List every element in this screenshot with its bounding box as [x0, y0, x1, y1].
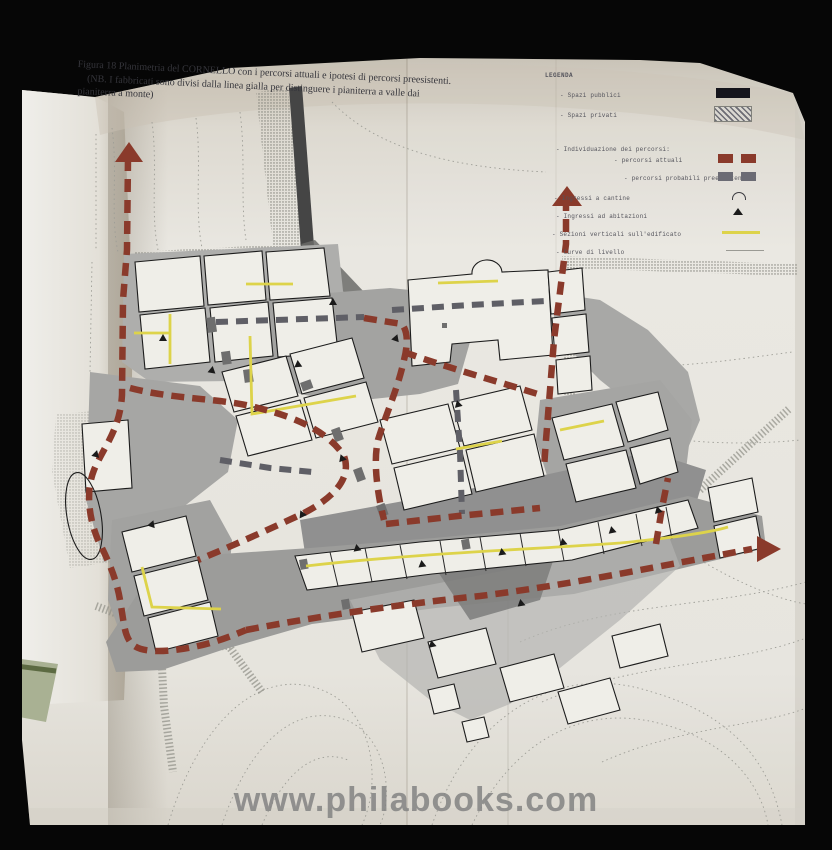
photo-frame: Figura 18 Planimetria del CORNELLO con i… [0, 0, 832, 850]
legend-swatch-spazi-pubblici-icon [716, 88, 750, 98]
legend-item-ingressi-cantine: - Ingressi a cantine [554, 195, 630, 202]
legend-item-ingressi-abitazioni: - Ingressi ad abitazioni [556, 213, 647, 220]
legend-item-spazi-pubblici: - Spazi pubblici [560, 92, 621, 99]
legend-item-curve-livello: - Curve di livello [556, 249, 624, 256]
legend-item-individuazione-percorsi: - Individuazione dei percorsi: [556, 146, 670, 153]
legend-gray-line-icon [726, 250, 764, 251]
legend-swatch-percorsi-attuali-icon [718, 154, 756, 163]
legend-swatch-percorsi-preesistenti-icon [718, 172, 756, 181]
legend-item-sezioni-verticali: - Sezioni verticali sull'edificato [552, 231, 681, 238]
legend: LEGENDA - Spazi pubblici - Spazi privati… [540, 66, 802, 266]
legend-yellow-line-icon [722, 231, 760, 234]
legend-item-percorsi-attuali: - percorsi attuali [614, 157, 682, 164]
legend-title: LEGENDA [545, 72, 573, 79]
watermark: www.philabooks.com [0, 781, 832, 820]
legend-arch-icon [732, 192, 746, 200]
legend-swatch-spazi-privati-icon [714, 106, 752, 122]
legend-item-spazi-privati: - Spazi privati [560, 112, 617, 119]
legend-triangle-icon [733, 208, 743, 215]
